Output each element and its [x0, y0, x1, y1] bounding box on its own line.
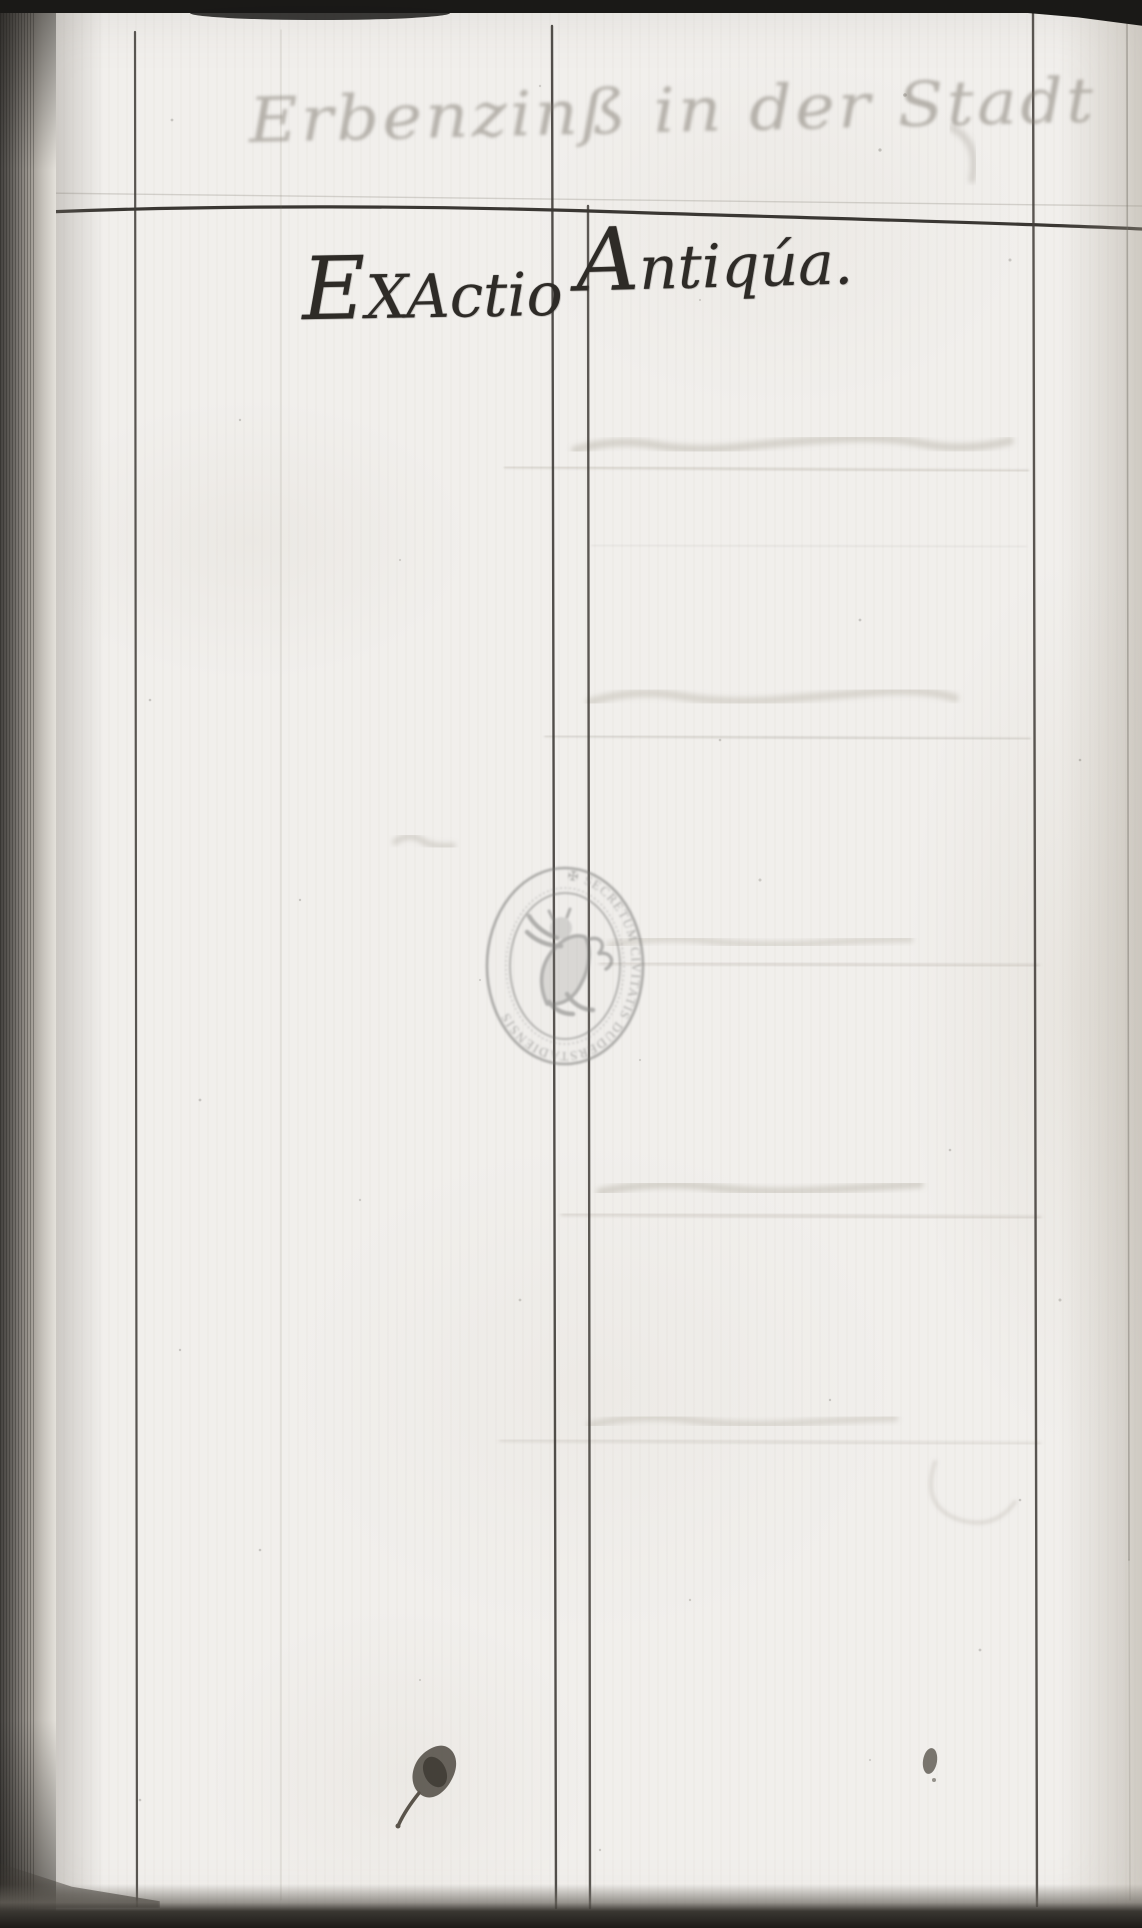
- binding-page-edges: [0, 0, 36, 1928]
- top-scan-band-bump: [190, 6, 450, 20]
- right-column-title: Antiqúa.: [575, 202, 854, 311]
- right-page-curvature-shade: [1058, 0, 1142, 1928]
- left-column-title: EXActio: [301, 234, 563, 341]
- scan-vignette: [0, 0, 1142, 1928]
- binding-shadow-top: [0, 0, 56, 170]
- gutter-shadow: [56, 0, 104, 1928]
- manuscript-page: ✠ SECRETUM CIVITATIS DUDERSTADIENSIS: [0, 0, 1142, 1928]
- top-scan-band: [0, 0, 1142, 13]
- bottom-scan-band: [0, 1884, 1142, 1928]
